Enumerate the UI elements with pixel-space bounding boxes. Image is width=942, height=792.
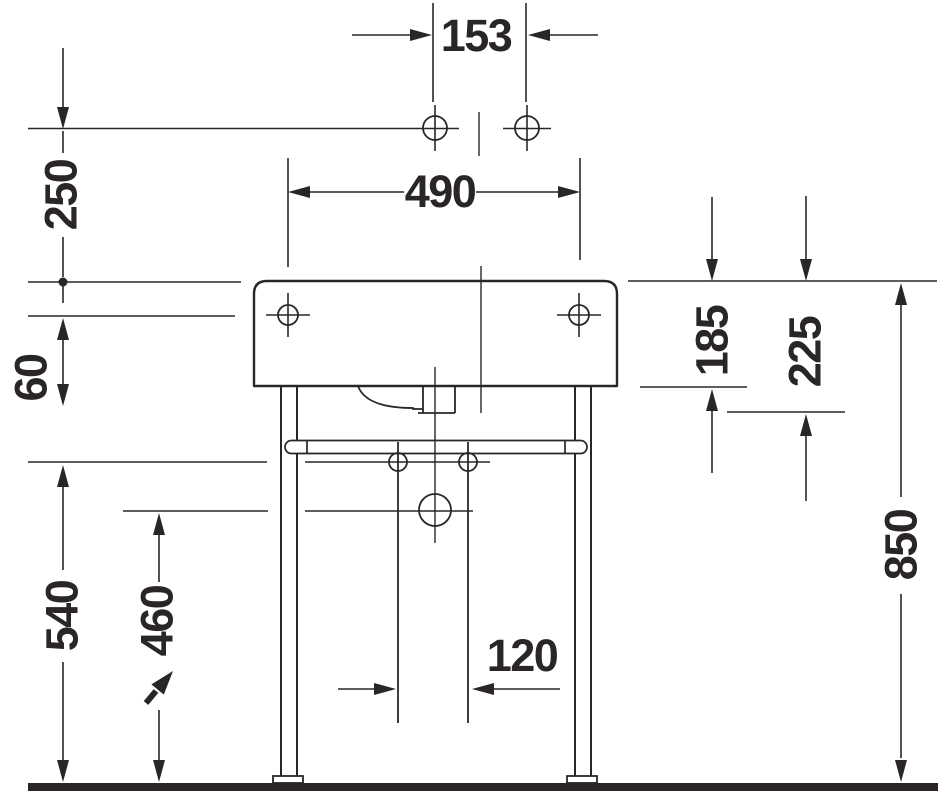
left-extension-lines [28, 282, 490, 511]
dim-label-120: 120 [487, 630, 558, 681]
arrowhead [374, 683, 396, 695]
dimension-60: 60 [6, 318, 70, 406]
dim-label-225: 225 [780, 316, 831, 387]
arrowhead [57, 384, 69, 406]
dim-label-250: 250 [36, 159, 87, 230]
arrowhead [153, 513, 165, 535]
dimension-850: 850 [876, 283, 927, 782]
arrowhead [57, 465, 69, 487]
arrowhead [800, 414, 812, 436]
dimension-153: 153 [352, 3, 598, 102]
dimension-460: 460 [132, 513, 183, 782]
dim-label-850: 850 [876, 509, 927, 580]
dimension-225: 225 [780, 196, 831, 501]
faucet-holes [28, 105, 551, 156]
drain-trap [358, 386, 423, 409]
dim-label-540: 540 [37, 580, 88, 651]
arrowhead [288, 186, 310, 198]
dimension-120: 120 [338, 630, 560, 695]
dim-label-60: 60 [6, 354, 57, 402]
arrowhead [800, 259, 812, 281]
technical-drawing-canvas: 153 250 60 [0, 0, 942, 792]
arrowhead [57, 107, 69, 129]
floor-line [28, 783, 938, 791]
arrowhead [472, 683, 494, 695]
dimension-250: 250 [36, 48, 87, 303]
dimension-540: 540 [37, 465, 88, 782]
right-foot [567, 776, 597, 783]
left-foot [273, 776, 303, 783]
arrowhead [895, 760, 907, 782]
arrowhead [706, 259, 718, 281]
technical-drawing-page: 153 250 60 [0, 0, 942, 792]
dimension-490: 490 [288, 158, 580, 267]
dimension-185: 185 [687, 197, 738, 473]
arrowhead [410, 29, 432, 41]
leader-arrow-tail [146, 691, 156, 703]
arrowhead [57, 760, 69, 782]
arrowhead [57, 318, 69, 340]
connections [389, 367, 477, 723]
dim-label-185: 185 [687, 305, 738, 376]
arrowhead [895, 283, 907, 305]
towel-rail [285, 441, 587, 454]
arrowhead [706, 389, 718, 411]
dim-label-490: 490 [405, 166, 476, 217]
arrowhead [153, 760, 165, 782]
arrowhead [528, 29, 550, 41]
arrowhead [558, 186, 580, 198]
dim-label-153: 153 [441, 10, 512, 61]
dim-label-460: 460 [132, 585, 183, 656]
